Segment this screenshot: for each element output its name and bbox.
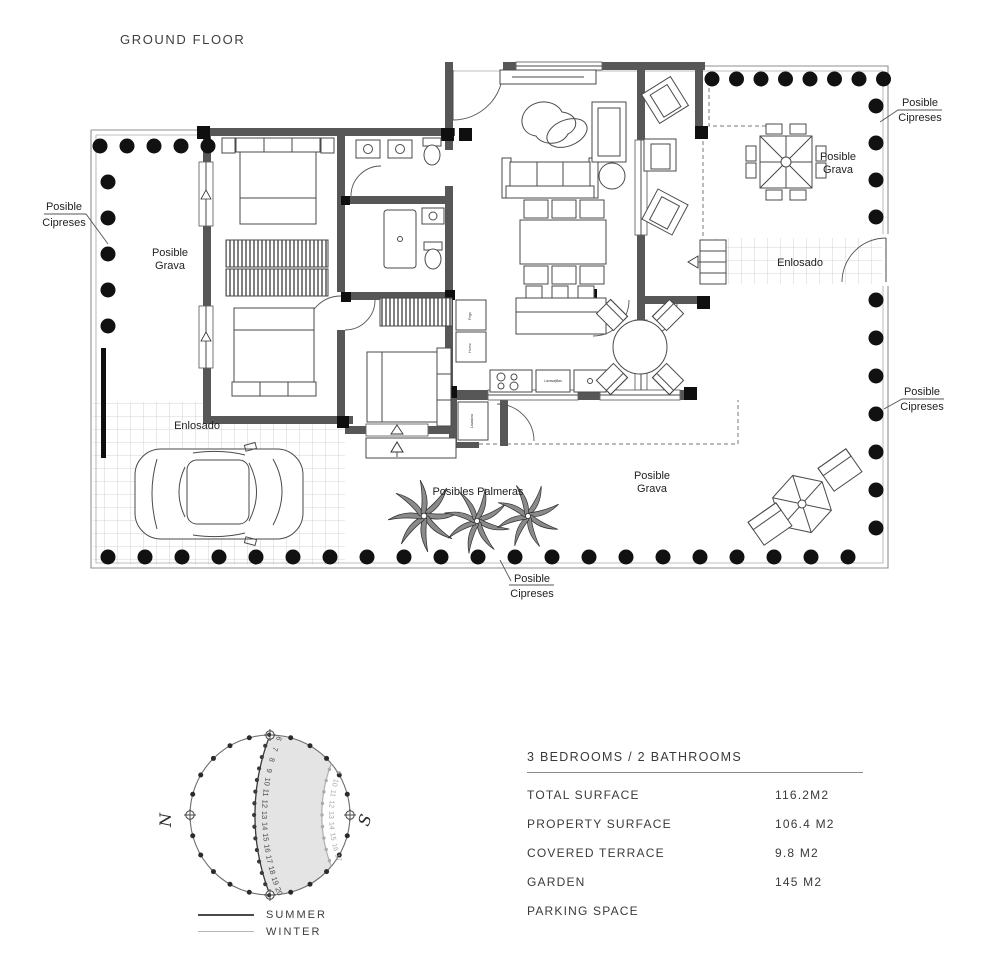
walkway-steps bbox=[688, 240, 726, 284]
bedroom3-furniture bbox=[367, 298, 452, 426]
label-cipreses-left-2: Cipreses bbox=[42, 217, 86, 229]
label-cipreses-right-1: Posible bbox=[904, 386, 940, 398]
svg-text:13: 13 bbox=[327, 811, 334, 819]
specs-panel: 3 BEDROOMS / 2 BATHROOMS TOTAL SURFACE 1… bbox=[527, 750, 863, 918]
boundary-wall-bar bbox=[101, 348, 106, 458]
covered-terrace-chairs bbox=[642, 77, 689, 235]
legend-summer: SUMMER bbox=[198, 906, 327, 923]
summer-label: SUMMER bbox=[266, 909, 327, 921]
winter-label: WINTER bbox=[266, 926, 321, 938]
specs-divider bbox=[527, 772, 863, 773]
label-cipreses-topright-1: Posible bbox=[902, 97, 938, 109]
south-label: S bbox=[354, 812, 376, 829]
svg-text:16: 16 bbox=[330, 843, 339, 852]
washer-label: Lavadora bbox=[470, 414, 474, 428]
floor-plan-page: GROUND FLOOR bbox=[0, 0, 995, 960]
svg-text:12: 12 bbox=[327, 800, 335, 808]
svg-text:14: 14 bbox=[260, 822, 269, 831]
label-palmeras: Posibles Palmeras bbox=[432, 486, 524, 498]
label-cipreses-topright-2: Cipreses bbox=[898, 112, 942, 124]
svg-text:10: 10 bbox=[330, 778, 339, 787]
label-cipreses-right-2: Cipreses bbox=[900, 401, 944, 413]
label-grava-left-2: Grava bbox=[155, 260, 186, 272]
label-enlosado-walkway: Enlosado bbox=[777, 257, 823, 269]
wardrobe bbox=[226, 269, 328, 296]
garden-parasol-loungers bbox=[748, 449, 862, 545]
bedroom2-furniture bbox=[232, 308, 316, 396]
label-grava-bottom-2: Grava bbox=[637, 483, 668, 495]
north-label: N bbox=[156, 812, 175, 828]
garden-patio-set bbox=[746, 124, 826, 200]
entrance-porch bbox=[366, 438, 456, 458]
label-enlosado-parking: Enlosado bbox=[174, 420, 220, 432]
svg-text:10: 10 bbox=[262, 777, 272, 787]
label-grava-bottom-1: Posible bbox=[634, 470, 670, 482]
oven-label: Horno bbox=[468, 343, 472, 352]
floor-plan-drawing: Frigo Horno Lavavajillas Lavadora bbox=[0, 0, 995, 650]
car bbox=[135, 443, 303, 546]
label-cipreses-bottom-1: Posible bbox=[514, 573, 550, 585]
dishwasher-label: Lavavajillas bbox=[544, 379, 562, 383]
svg-text:15: 15 bbox=[328, 832, 336, 841]
svg-text:11: 11 bbox=[261, 788, 271, 797]
winter-line-swatch bbox=[198, 931, 254, 932]
wardrobe bbox=[226, 240, 328, 267]
spec-row-garden: GARDEN 145 M2 bbox=[527, 875, 863, 889]
specs-title: 3 BEDROOMS / 2 BATHROOMS bbox=[527, 750, 863, 764]
svg-text:11: 11 bbox=[328, 789, 336, 797]
living-room-furniture bbox=[500, 70, 626, 284]
spec-row-covered-terrace: COVERED TERRACE 9.8 M2 bbox=[527, 846, 863, 860]
bathroom1-fixtures bbox=[356, 138, 441, 165]
spec-row-total-surface: TOTAL SURFACE 116.2M2 bbox=[527, 788, 863, 802]
label-cipreses-bottom-2: Cipreses bbox=[510, 588, 554, 600]
kitchen-furniture: Frigo Horno Lavavajillas Lavadora bbox=[456, 286, 606, 440]
svg-text:13: 13 bbox=[260, 811, 269, 819]
svg-text:15: 15 bbox=[261, 833, 271, 842]
label-cipreses-left-1: Posible bbox=[46, 201, 82, 213]
summer-line-swatch bbox=[198, 914, 254, 916]
bedroom1-furniture bbox=[222, 138, 334, 296]
spec-row-property-surface: PROPERTY SURFACE 106.4 M2 bbox=[527, 817, 863, 831]
spec-row-parking-space: PARKING SPACE bbox=[527, 904, 863, 918]
svg-text:12: 12 bbox=[260, 799, 269, 808]
label-grava-topright-2: Grava bbox=[823, 164, 854, 176]
bathroom2-fixtures bbox=[384, 208, 444, 269]
sun-legend: SUMMER WINTER bbox=[198, 906, 327, 940]
label-grava-left-1: Posible bbox=[152, 247, 188, 259]
sun-path-diagram: 67891011121314151617181920 9101112131415… bbox=[155, 700, 385, 930]
legend-winter: WINTER bbox=[198, 923, 327, 940]
svg-text:16: 16 bbox=[262, 844, 272, 854]
svg-text:14: 14 bbox=[327, 822, 335, 830]
svg-text:17: 17 bbox=[333, 853, 342, 863]
fridge-label: Frigo bbox=[468, 312, 472, 320]
label-grava-topright-1: Posible bbox=[820, 151, 856, 163]
wardrobe bbox=[380, 298, 452, 326]
